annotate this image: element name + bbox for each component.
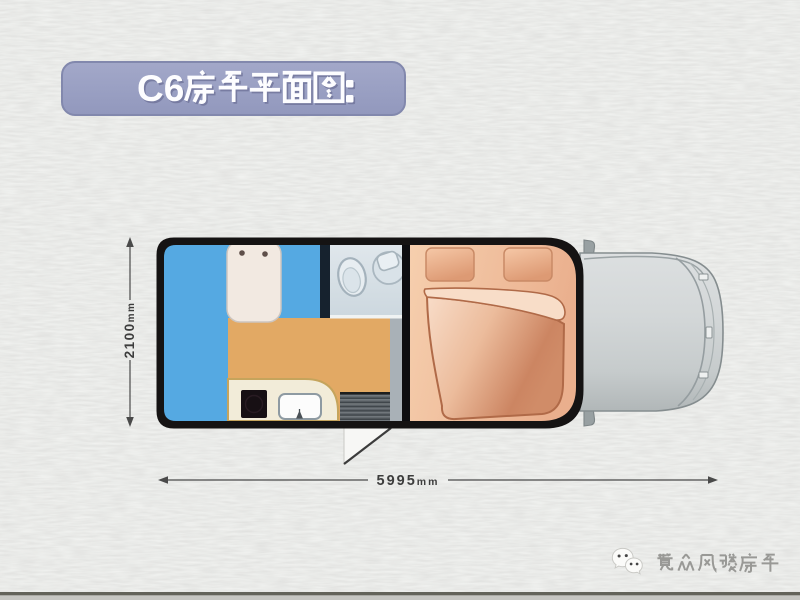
svg-text:C6: C6 [137,68,184,109]
svg-text:5995mm: 5995mm [377,473,440,489]
